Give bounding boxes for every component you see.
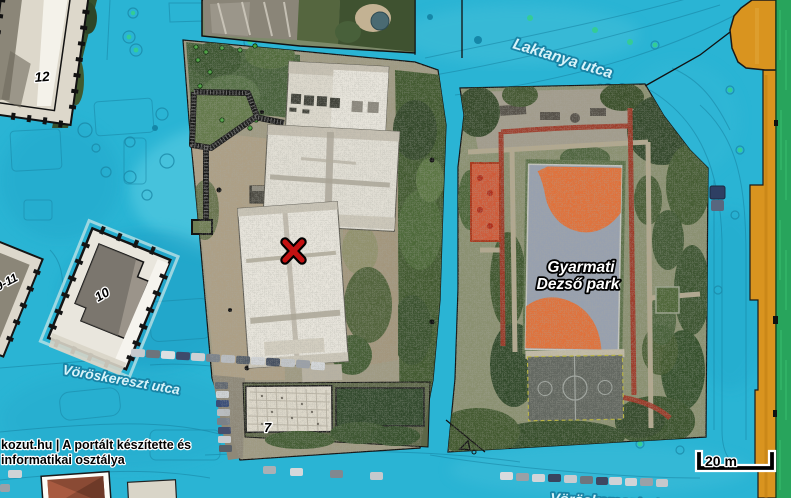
svg-text:Dezső park: Dezső park — [537, 276, 621, 293]
svg-text:kozut.hu | A portált készített: kozut.hu | A portált készítette és — [1, 438, 191, 452]
svg-text:12: 12 — [34, 69, 51, 85]
svg-text:Gyarmati: Gyarmati — [547, 259, 615, 276]
svg-text:20 m: 20 m — [705, 453, 737, 469]
svg-text:informatikai osztálya: informatikai osztálya — [1, 453, 126, 467]
svg-text:7: 7 — [264, 420, 272, 435]
